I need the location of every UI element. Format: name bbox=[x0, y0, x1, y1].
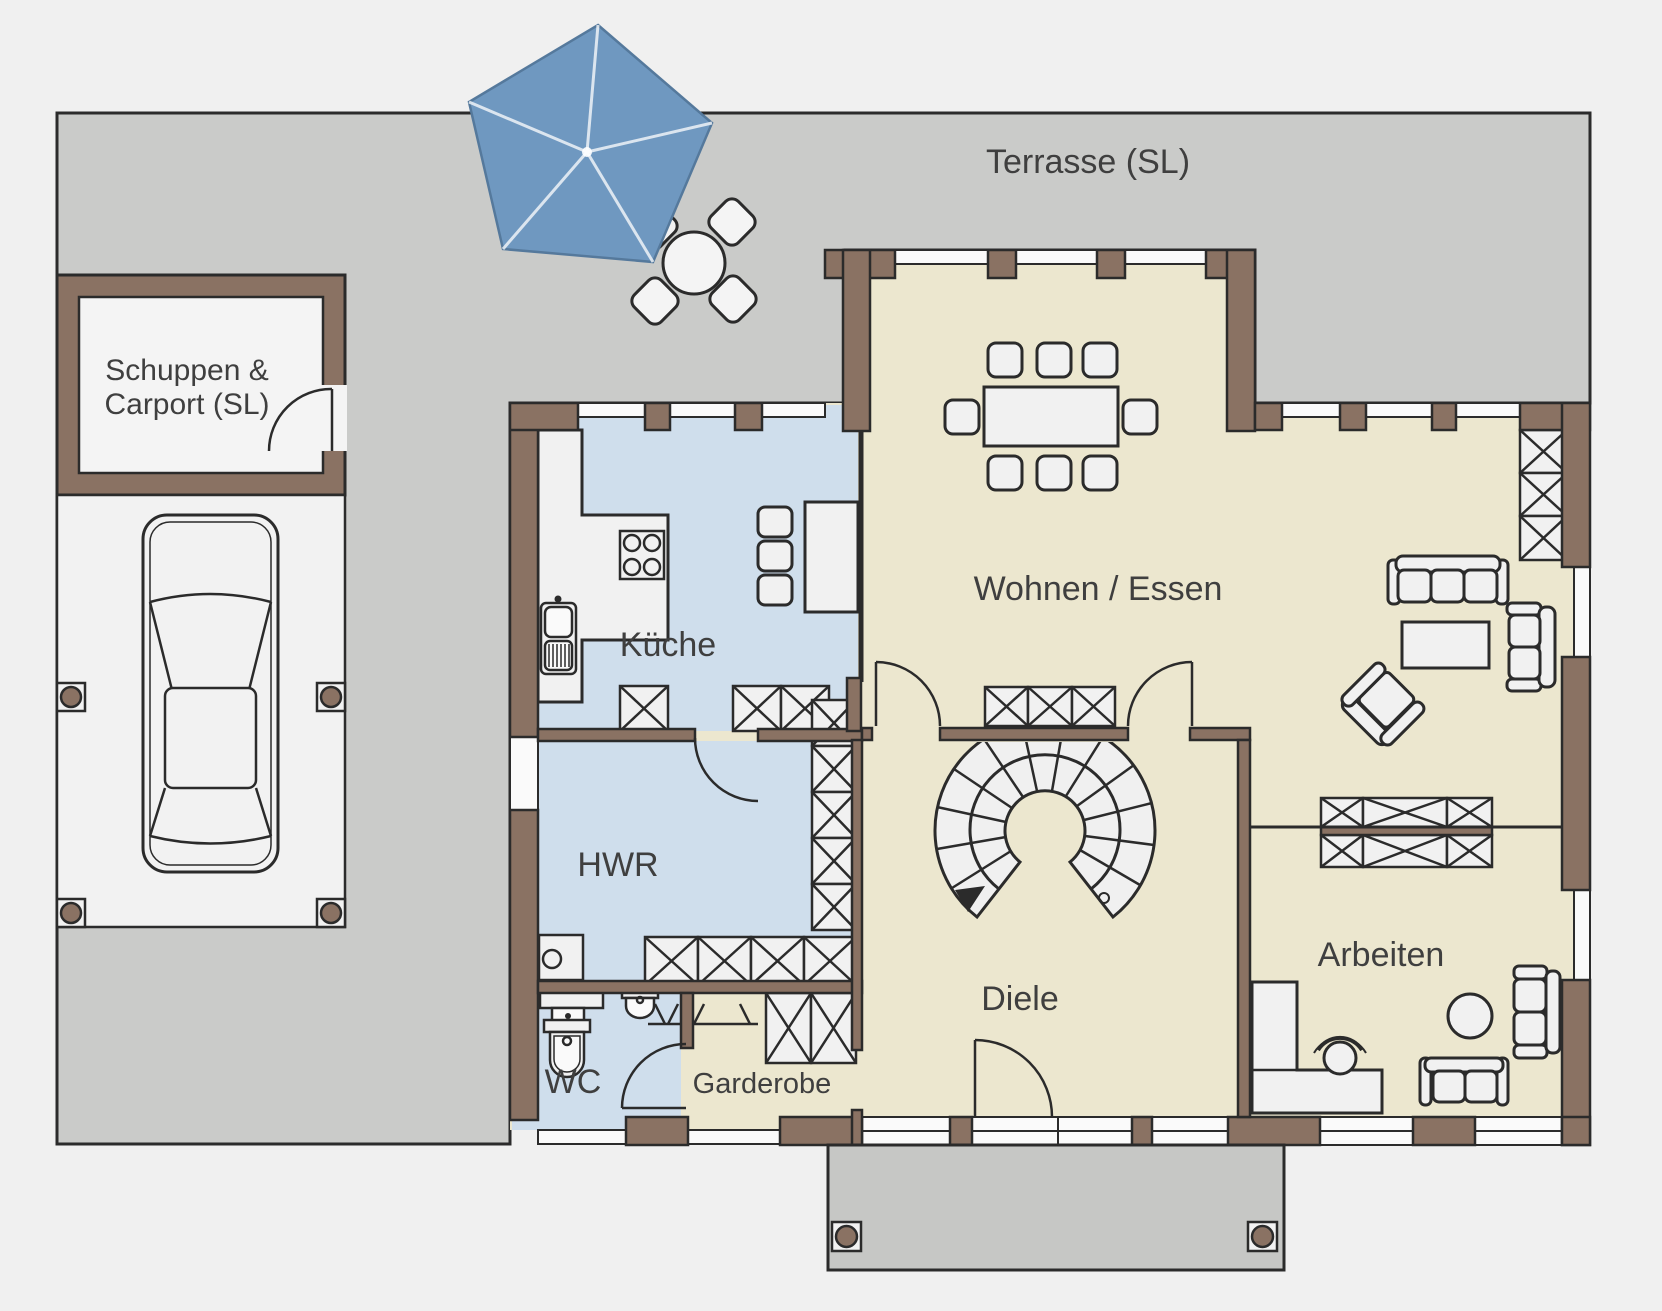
hall-label: Diele bbox=[981, 980, 1058, 1018]
car-icon bbox=[143, 515, 278, 872]
utility-label: HWR bbox=[577, 846, 658, 884]
living-label: Wohnen / Essen bbox=[974, 570, 1223, 608]
sideboard-icon bbox=[985, 687, 1115, 726]
kitchen-table-icon bbox=[805, 502, 858, 612]
dining-chair-icon bbox=[945, 400, 979, 434]
cooktop-icon bbox=[620, 531, 664, 579]
shed-label-line2: Carport (SL) bbox=[104, 388, 269, 421]
dining-chair-icon bbox=[1037, 343, 1071, 377]
shed-label-line1: Schuppen & bbox=[105, 354, 268, 387]
dining-chair-icon bbox=[1037, 456, 1071, 490]
loveseat-icon bbox=[1420, 1058, 1508, 1105]
dining-chair-icon bbox=[988, 343, 1022, 377]
side-table-icon bbox=[1448, 994, 1492, 1038]
wc-label: WC bbox=[545, 1063, 602, 1101]
patio-table-icon bbox=[663, 232, 725, 294]
porch-area bbox=[828, 1145, 1284, 1270]
dining-chair-icon bbox=[1123, 400, 1157, 434]
office-label: Arbeiten bbox=[1318, 936, 1445, 974]
coffee-table-icon bbox=[1402, 622, 1489, 668]
utility-shelf-icon bbox=[645, 937, 856, 985]
floorplan-page: Terrasse (SL) Schuppen & Carport (SL) Kü… bbox=[0, 0, 1662, 1311]
porch-group bbox=[828, 1145, 1284, 1270]
dining-chair-icon bbox=[988, 456, 1022, 490]
office-shelf-icon bbox=[1321, 798, 1492, 867]
terrace-label: Terrasse (SL) bbox=[986, 143, 1190, 181]
dining-chair-icon bbox=[1083, 456, 1117, 490]
dining-chair-icon bbox=[1083, 343, 1117, 377]
wardrobe-label: Garderobe bbox=[693, 1068, 832, 1100]
corner-shelf-icon bbox=[1520, 430, 1567, 560]
carport-group bbox=[57, 495, 345, 927]
sofa-2seat-icon bbox=[1507, 603, 1555, 691]
kitchen-sink-icon bbox=[541, 596, 576, 675]
kitchen-chair-icon bbox=[758, 507, 792, 537]
dining-table-icon bbox=[984, 387, 1118, 446]
kitchen-chair-icon bbox=[758, 541, 792, 571]
wardrobe-closet-icon bbox=[766, 993, 856, 1063]
kitchen-chair-icon bbox=[758, 575, 792, 605]
sofa-3seat-icon bbox=[1388, 556, 1508, 604]
floorplan-svg: Terrasse (SL) Schuppen & Carport (SL) Kü… bbox=[0, 0, 1662, 1311]
office-sofa-icon bbox=[1514, 966, 1560, 1058]
kitchen-label: Küche bbox=[620, 626, 716, 664]
